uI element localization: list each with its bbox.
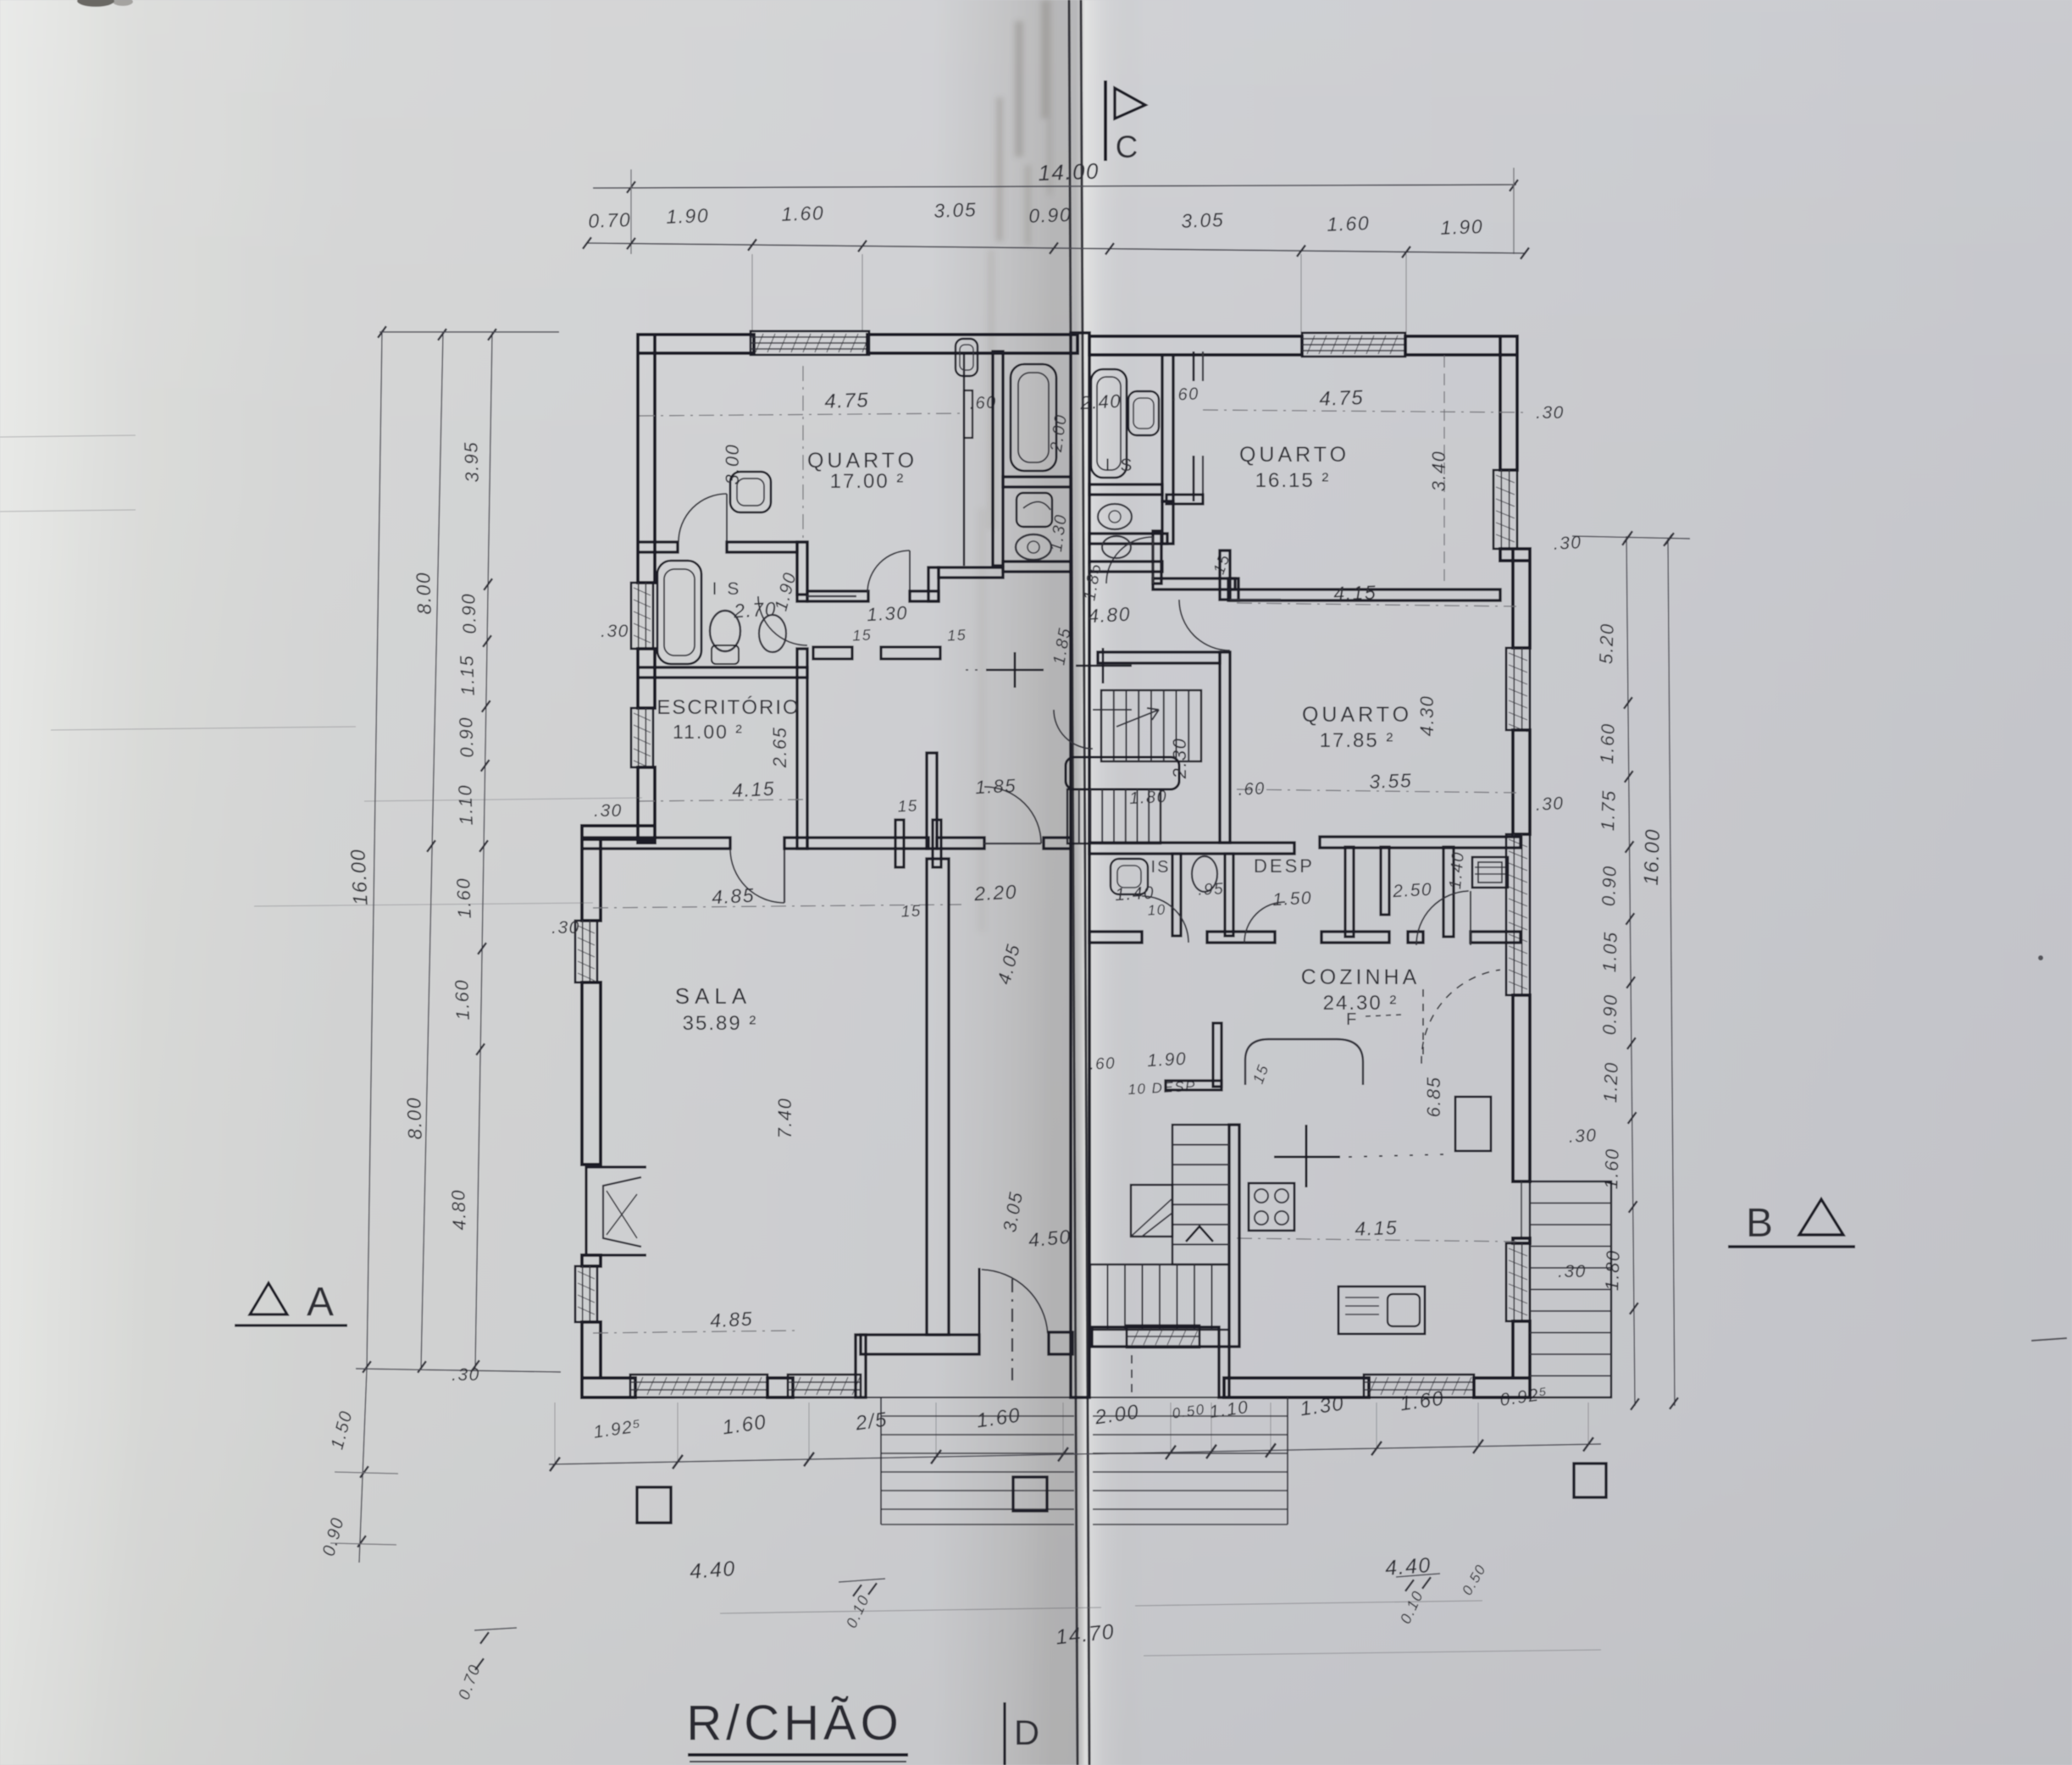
svg-text:A: A	[307, 1280, 334, 1325]
svg-text:1.30: 1.30	[867, 602, 909, 626]
svg-text:10: 10	[1147, 901, 1166, 918]
svg-text:.60: .60	[1172, 385, 1199, 405]
svg-text:SALA: SALA	[675, 983, 752, 1009]
svg-text:.60: .60	[1238, 779, 1266, 800]
svg-text:COZINHA: COZINHA	[1301, 965, 1421, 989]
svg-text:DESP: DESP	[1254, 855, 1315, 877]
svg-text:1.80: 1.80	[1601, 1249, 1624, 1292]
svg-text:1.90: 1.90	[1440, 215, 1484, 239]
svg-text:I S: I S	[1105, 456, 1135, 475]
svg-text:1.90: 1.90	[1147, 1049, 1188, 1071]
svg-text:2.40: 2.40	[1079, 390, 1122, 414]
svg-text:1.60: 1.60	[452, 877, 475, 919]
svg-text:16.15 ²: 16.15 ²	[1255, 469, 1331, 492]
svg-text:1.60: 1.60	[1327, 212, 1371, 235]
svg-text:1.40: 1.40	[1115, 883, 1155, 905]
svg-text:C: C	[1116, 130, 1138, 164]
svg-text:35.89 ²: 35.89 ²	[683, 1012, 758, 1035]
svg-text:IS: IS	[1151, 858, 1171, 877]
svg-text:5.20: 5.20	[1595, 622, 1618, 665]
svg-text:.30: .30	[1553, 533, 1582, 554]
svg-text:4.75: 4.75	[824, 389, 870, 413]
svg-text:1.15: 1.15	[456, 654, 479, 696]
svg-text:15: 15	[900, 902, 922, 921]
svg-text:16.00: 16.00	[1640, 828, 1665, 886]
svg-text:.30: .30	[1536, 403, 1565, 423]
svg-text:4.80: 4.80	[447, 1188, 470, 1231]
svg-text:0.90: 0.90	[1028, 203, 1072, 227]
svg-text:15: 15	[852, 626, 873, 644]
svg-text:0.90: 0.90	[1598, 993, 1621, 1036]
svg-text:2.30: 2.30	[1169, 738, 1190, 780]
svg-text:.30: .30	[601, 622, 629, 641]
svg-text:0.90: 0.90	[455, 716, 478, 758]
svg-text:8.00: 8.00	[412, 571, 435, 615]
svg-text:11.00 ²: 11.00 ²	[673, 721, 744, 743]
svg-text:2/5: 2/5	[853, 1408, 889, 1436]
svg-text:D: D	[1014, 1712, 1039, 1752]
svg-text:1.05: 1.05	[1598, 931, 1621, 973]
svg-text:4.75: 4.75	[1319, 386, 1365, 411]
svg-text:4.85: 4.85	[710, 1308, 754, 1332]
svg-text:15: 15	[897, 797, 918, 816]
svg-text:17.85 ²: 17.85 ²	[1320, 729, 1395, 752]
svg-text:2.50: 2.50	[1392, 880, 1433, 901]
svg-text:3.55: 3.55	[1369, 769, 1413, 793]
svg-text:QUARTO: QUARTO	[1239, 443, 1349, 467]
svg-text:1.60: 1.60	[781, 202, 825, 225]
svg-text:1.85: 1.85	[975, 775, 1017, 799]
svg-text:0.90: 0.90	[457, 592, 480, 634]
svg-text:2.70: 2.70	[733, 598, 778, 622]
svg-text:24.30 ²: 24.30 ²	[1323, 992, 1399, 1015]
svg-text:1.60: 1.60	[451, 978, 474, 1021]
svg-text:0.70: 0.70	[588, 208, 632, 232]
svg-text:1.10: 1.10	[454, 783, 477, 826]
svg-text:4.50: 4.50	[1028, 1226, 1072, 1251]
svg-text:.30: .30	[1568, 1126, 1598, 1147]
svg-text:4.15: 4.15	[1355, 1216, 1399, 1240]
svg-text:1.75: 1.75	[1597, 789, 1620, 832]
svg-text:3.95: 3.95	[460, 440, 483, 483]
svg-text:R/CHÃO: R/CHÃO	[686, 1696, 903, 1751]
svg-text:.30: .30	[452, 1365, 480, 1385]
svg-text:.30: .30	[1558, 1262, 1587, 1281]
svg-text:4.15: 4.15	[732, 777, 776, 802]
svg-text:2.20: 2.20	[973, 881, 1018, 905]
svg-text:.30: .30	[594, 801, 623, 821]
svg-text:1.60: 1.60	[1596, 722, 1619, 765]
svg-text:17.00 ²: 17.00 ²	[830, 470, 906, 493]
svg-text:I S: I S	[712, 579, 742, 599]
svg-text:.60: .60	[1089, 1054, 1116, 1074]
svg-text:.95: .95	[1198, 880, 1225, 899]
svg-text:3.05: 3.05	[1181, 208, 1225, 232]
svg-text:7.40: 7.40	[774, 1098, 795, 1139]
svg-text:QUARTO: QUARTO	[807, 449, 917, 473]
svg-text:16.00: 16.00	[346, 848, 372, 906]
svg-text:3.00: 3.00	[722, 444, 743, 485]
svg-text:3.40: 3.40	[1428, 451, 1449, 492]
svg-text:0.90: 0.90	[1598, 865, 1620, 907]
svg-text:1.90: 1.90	[666, 204, 710, 228]
svg-text:4.85: 4.85	[712, 884, 756, 909]
svg-text:ESCRITÓRIO: ESCRITÓRIO	[657, 696, 800, 719]
svg-text:.30: .30	[1535, 794, 1565, 815]
svg-text:6.85: 6.85	[1423, 1076, 1444, 1118]
svg-text:4.15: 4.15	[1333, 581, 1377, 605]
svg-text:15: 15	[947, 626, 967, 644]
svg-text:.30: .30	[551, 918, 580, 938]
svg-text:4.30: 4.30	[1416, 695, 1438, 737]
svg-text:2.65: 2.65	[769, 727, 790, 769]
svg-text:B: B	[1746, 1201, 1775, 1246]
svg-text:1.50: 1.50	[1272, 888, 1313, 910]
svg-text:1.20: 1.20	[1599, 1061, 1622, 1104]
svg-text:4.40: 4.40	[689, 1557, 736, 1584]
svg-text:F: F	[1346, 1010, 1358, 1029]
svg-text:3.05: 3.05	[934, 198, 978, 222]
svg-text:QUARTO: QUARTO	[1302, 703, 1412, 727]
svg-text:1.80: 1.80	[1129, 788, 1168, 808]
svg-text:8.00: 8.00	[402, 1096, 426, 1140]
svg-text:1.40: 1.40	[1446, 850, 1468, 890]
svg-text:14.00: 14.00	[1038, 158, 1100, 186]
svg-text:4.80: 4.80	[1088, 603, 1132, 628]
